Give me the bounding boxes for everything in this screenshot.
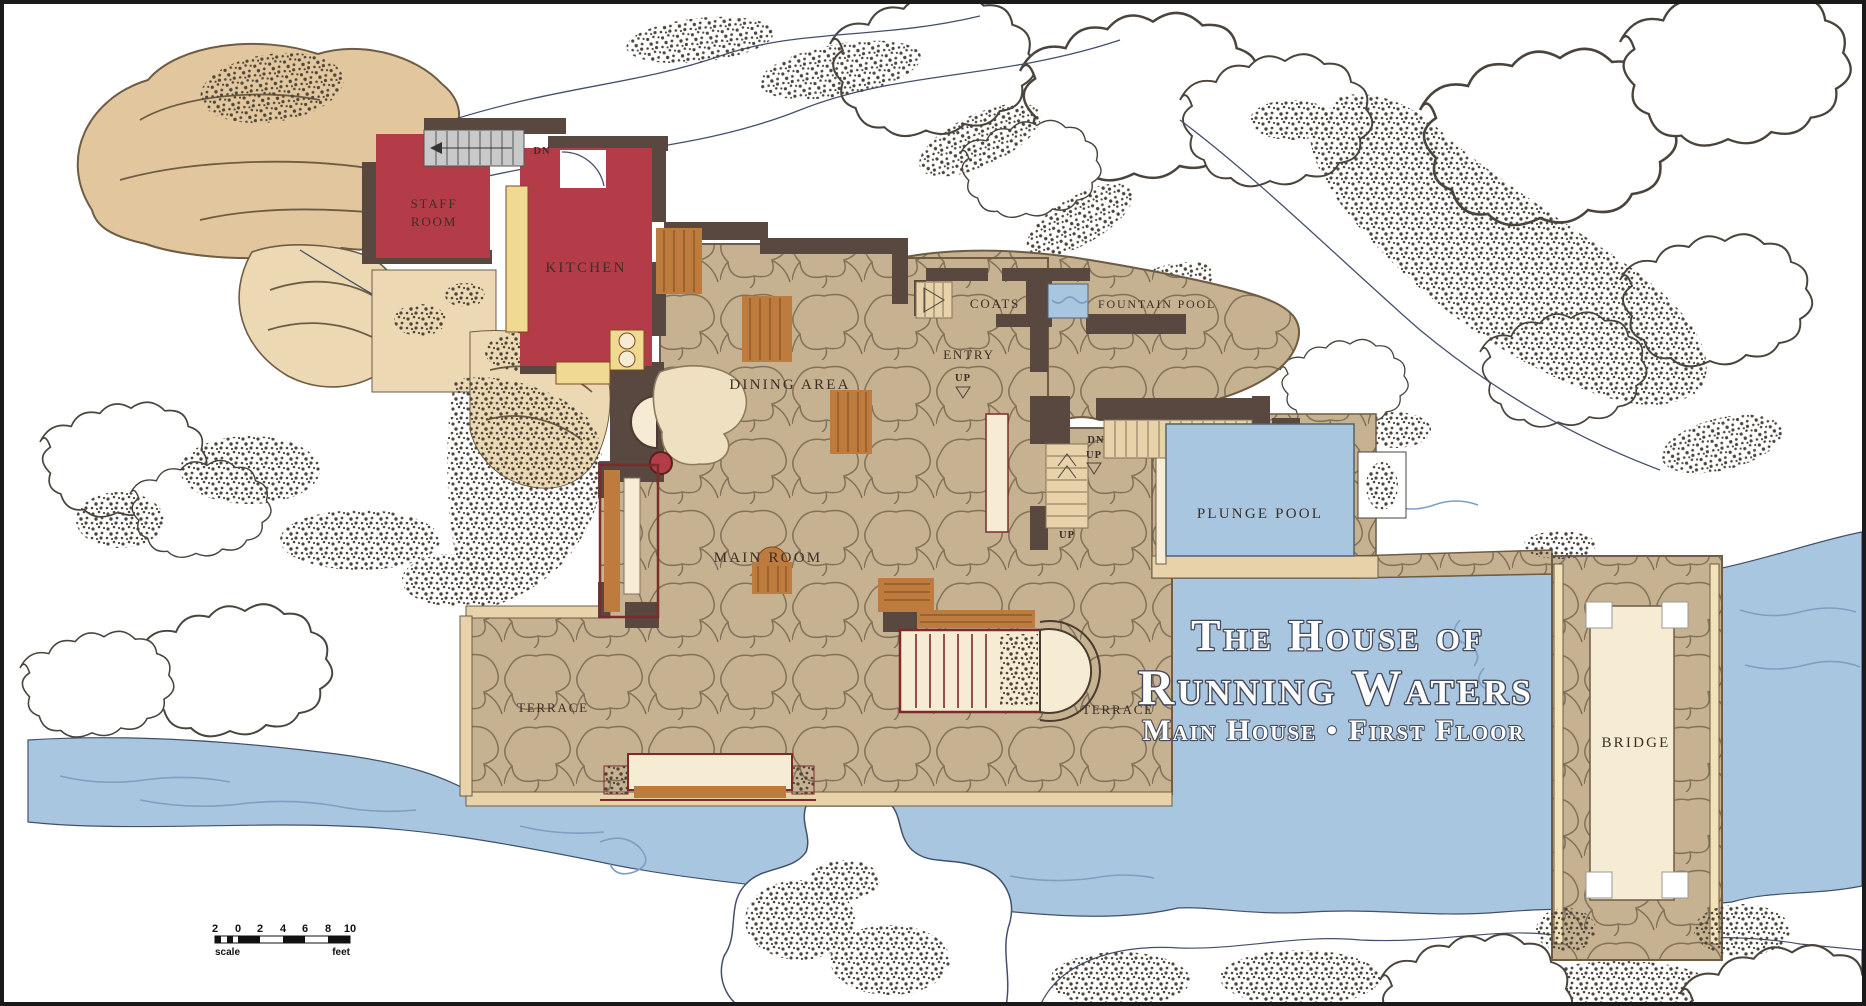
dn-walkway-label: DN — [1087, 435, 1104, 446]
kettle — [650, 452, 672, 474]
south-seat-wood-band — [634, 786, 786, 798]
staff-room-label-line1: STAFF — [411, 196, 458, 211]
fountain-pool-label: FOUNTAIN POOL — [1098, 297, 1216, 311]
main-room-label: MAIN ROOM — [714, 550, 823, 566]
coats-label: COATS — [970, 296, 1020, 311]
entry-stairs — [916, 282, 952, 318]
entry-label: ENTRY — [943, 347, 995, 362]
scale-label: scale — [215, 947, 240, 958]
bridge-label: BRIDGE — [1601, 735, 1670, 751]
terrace-west-label: TERRACE — [517, 700, 589, 715]
title-subtitle: Main House • First Floor — [1142, 714, 1525, 747]
stove-burner — [619, 333, 635, 349]
scale-tick: 2 — [212, 923, 218, 935]
wood-piece — [742, 296, 792, 362]
foliage-blob — [1250, 100, 1334, 140]
up-walkway-label: UP — [1086, 450, 1102, 461]
east-window-seat — [986, 414, 1008, 532]
scale-tick: 6 — [302, 923, 308, 935]
south-planter-west — [604, 766, 628, 794]
scale-bar-blocks — [215, 936, 350, 943]
bridge-rail-east — [1710, 564, 1719, 944]
floor-plan-artwork: STAFF ROOM KITCHEN DINING AREA MAIN ROOM… — [0, 0, 1866, 1006]
bridge-foliage — [1694, 904, 1790, 956]
service-stairs — [424, 130, 524, 166]
west-window-seat — [624, 478, 640, 594]
title-line2: Running Waters — [1138, 659, 1534, 715]
wood-piece — [830, 390, 872, 454]
staff-room-label-line2: ROOM — [411, 214, 457, 229]
title-line1: The House of — [1191, 611, 1485, 660]
hatch-stairs — [900, 621, 1100, 721]
plunge-pool-water — [1166, 424, 1354, 556]
wood-piece — [656, 228, 702, 294]
kitchen-counter — [556, 362, 610, 384]
scale-tick: 4 — [280, 923, 287, 935]
west-window-wood — [604, 470, 620, 612]
stove-burner — [619, 351, 635, 367]
scale-tick: 0 — [235, 923, 241, 935]
title-block: The House of Running Waters Main House •… — [1138, 611, 1534, 747]
main-stairs — [1046, 444, 1088, 528]
fountain-pool-group — [1048, 284, 1088, 318]
feet-label: feet — [332, 947, 350, 958]
scale-tick: 10 — [344, 923, 356, 935]
dining-area-label: DINING AREA — [729, 377, 850, 393]
plan-canvas: STAFF ROOM KITCHEN DINING AREA MAIN ROOM… — [0, 0, 1866, 1006]
south-window-seat — [628, 754, 792, 790]
dn-service-label: DN — [533, 146, 550, 157]
foliage-blob — [76, 492, 164, 548]
bridge-rail-west — [1554, 564, 1563, 944]
south-planter-east — [792, 766, 814, 794]
up-main-stairs-label: UP — [1059, 530, 1075, 541]
up-entry-label: UP — [955, 373, 971, 384]
scale-tick: 8 — [325, 923, 331, 935]
bridge-foliage — [1536, 908, 1596, 952]
pantry-window-strip — [506, 186, 528, 332]
plunge-pool-label: PLUNGE POOL — [1197, 506, 1323, 522]
bridge-deck — [1590, 606, 1674, 900]
bridge-foliage — [1524, 531, 1596, 559]
pool-tree — [1366, 462, 1398, 510]
foliage-blob — [280, 510, 440, 570]
kitchen-door-nook — [560, 150, 606, 188]
foliage-blob — [180, 436, 320, 504]
scale-tick: 2 — [257, 923, 263, 935]
hatch-opening — [1000, 634, 1038, 706]
kitchen-label: KITCHEN — [545, 260, 626, 276]
